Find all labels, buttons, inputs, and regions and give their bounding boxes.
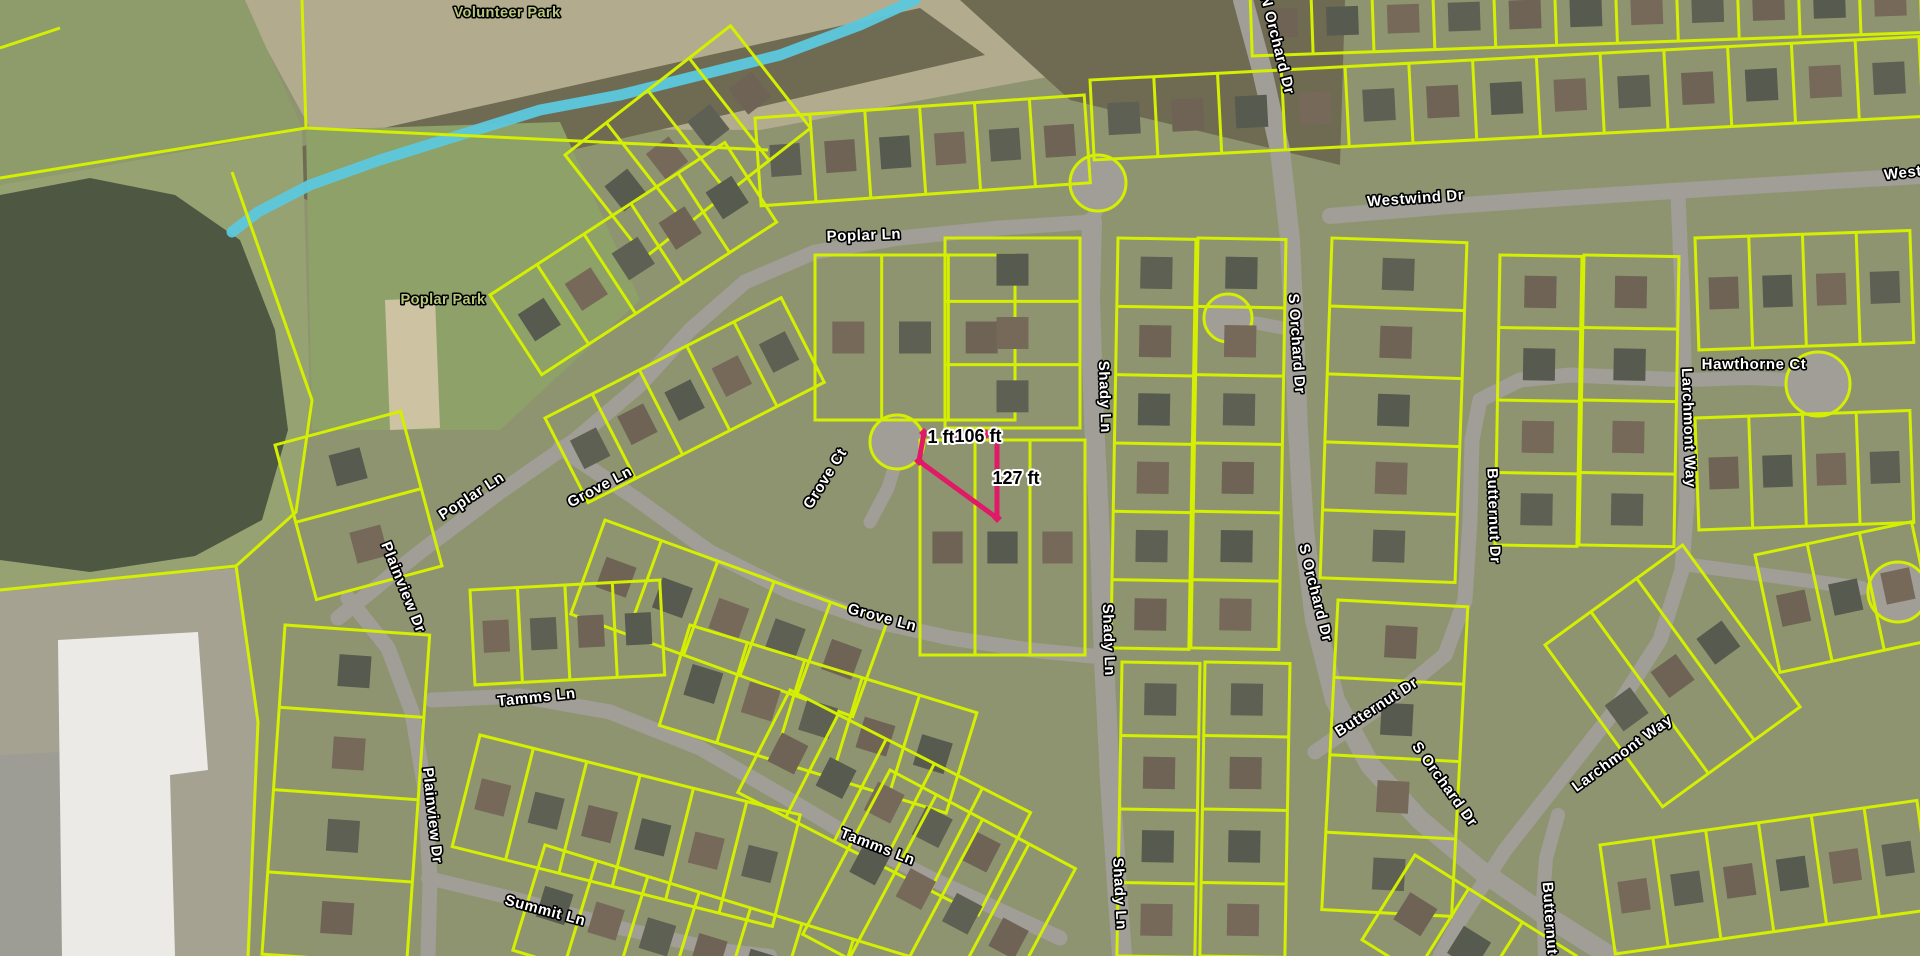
house bbox=[1143, 757, 1176, 790]
house bbox=[1553, 78, 1587, 112]
poplar-park-sand bbox=[385, 298, 440, 430]
house bbox=[1171, 98, 1205, 132]
house bbox=[482, 620, 510, 653]
house bbox=[1809, 65, 1843, 99]
house bbox=[1523, 348, 1556, 381]
street-label: Shady Ln bbox=[1099, 603, 1119, 676]
house bbox=[987, 532, 1017, 564]
house bbox=[989, 128, 1021, 162]
house bbox=[1569, 0, 1602, 27]
house bbox=[1134, 598, 1167, 631]
house bbox=[320, 901, 354, 935]
house bbox=[1520, 493, 1553, 526]
parcel-lot-line bbox=[1197, 306, 1285, 308]
house bbox=[337, 654, 371, 688]
house bbox=[1681, 71, 1715, 105]
house bbox=[1372, 530, 1405, 563]
house bbox=[1490, 81, 1524, 115]
house bbox=[934, 131, 966, 165]
parcel-lot-line bbox=[1581, 400, 1676, 402]
house bbox=[1615, 276, 1648, 309]
parcel-lot-line bbox=[1121, 735, 1199, 736]
house bbox=[1448, 2, 1481, 32]
house bbox=[997, 254, 1029, 286]
parcel-lot-line bbox=[1201, 882, 1286, 883]
house bbox=[1829, 848, 1863, 884]
house bbox=[1522, 421, 1555, 454]
house bbox=[879, 135, 911, 169]
house bbox=[1816, 453, 1847, 486]
house bbox=[1691, 0, 1724, 23]
house bbox=[932, 532, 962, 564]
house bbox=[824, 139, 856, 173]
house bbox=[1220, 530, 1253, 563]
house bbox=[966, 322, 998, 354]
house bbox=[1762, 455, 1793, 488]
street-label: Shady Ln bbox=[1095, 360, 1115, 433]
house bbox=[1870, 451, 1901, 484]
park-label: Volunteer Park bbox=[454, 5, 561, 21]
house bbox=[1140, 904, 1173, 937]
parcel-lot-line bbox=[1116, 375, 1194, 376]
house bbox=[1872, 61, 1906, 95]
house bbox=[1298, 91, 1332, 125]
house bbox=[1752, 0, 1785, 21]
house bbox=[625, 612, 653, 645]
house bbox=[1670, 870, 1704, 906]
parcel-lot-line bbox=[1580, 472, 1675, 474]
house bbox=[1222, 462, 1255, 495]
house bbox=[1617, 878, 1651, 914]
house bbox=[997, 317, 1029, 349]
house bbox=[1362, 88, 1396, 122]
house bbox=[997, 380, 1029, 412]
parcel-lot-line bbox=[1114, 443, 1192, 444]
street-label: Poplar Ln bbox=[826, 226, 901, 246]
parcel-lot-line bbox=[1192, 580, 1280, 582]
house bbox=[1611, 493, 1644, 526]
house bbox=[1762, 275, 1793, 308]
parcel-lot-line bbox=[1204, 735, 1289, 736]
house bbox=[1227, 904, 1260, 937]
house bbox=[1223, 393, 1256, 426]
parcel-lot-line bbox=[1194, 443, 1282, 445]
house bbox=[1326, 6, 1359, 36]
house bbox=[1135, 530, 1168, 563]
aerial-map-viewport[interactable]: Volunteer ParkPoplar ParkPoplar LnPoplar… bbox=[0, 0, 1920, 956]
street-label: Butternut Dr bbox=[1483, 468, 1503, 564]
parcel-lot-line bbox=[1497, 400, 1579, 401]
house bbox=[1107, 101, 1141, 135]
parcel-lot-line bbox=[1117, 306, 1195, 307]
parcel-lot-line bbox=[1499, 327, 1581, 328]
house bbox=[1613, 348, 1646, 381]
parcel-lot-line bbox=[1196, 375, 1284, 377]
house bbox=[1630, 0, 1663, 25]
house bbox=[1138, 393, 1171, 426]
house bbox=[1426, 85, 1460, 119]
house bbox=[1708, 457, 1739, 490]
house bbox=[1142, 830, 1175, 863]
house bbox=[1377, 394, 1410, 427]
house bbox=[577, 615, 605, 648]
house bbox=[1524, 276, 1557, 309]
house bbox=[1376, 780, 1410, 814]
house bbox=[1509, 0, 1542, 29]
house bbox=[1379, 326, 1412, 359]
street-label: Hawthorne Ct bbox=[1702, 356, 1807, 373]
parcel-lot-line bbox=[1118, 882, 1196, 883]
house bbox=[530, 617, 558, 650]
house bbox=[1229, 757, 1262, 790]
house bbox=[1137, 462, 1170, 495]
parcel-lot-line bbox=[1193, 511, 1281, 513]
house bbox=[1816, 273, 1847, 306]
house bbox=[326, 819, 360, 853]
map-canvas[interactable]: Volunteer ParkPoplar ParkPoplar LnPoplar… bbox=[0, 0, 1920, 956]
house bbox=[1042, 532, 1072, 564]
parcel-lot-line bbox=[1119, 809, 1197, 810]
house bbox=[1224, 325, 1257, 358]
measurement-label: 127 ft bbox=[992, 468, 1039, 488]
house bbox=[1881, 841, 1915, 877]
house bbox=[1139, 325, 1172, 358]
parcel-lot-line bbox=[1202, 809, 1287, 810]
house bbox=[1044, 124, 1076, 158]
house bbox=[1874, 0, 1907, 17]
house bbox=[332, 736, 366, 770]
measurement-label: 106 ft bbox=[954, 426, 1001, 446]
house bbox=[899, 322, 931, 354]
parcel-lot-line bbox=[1583, 327, 1678, 329]
house bbox=[1375, 462, 1408, 495]
house bbox=[1745, 68, 1779, 102]
house bbox=[1228, 830, 1261, 863]
house bbox=[1235, 95, 1269, 129]
house bbox=[1617, 75, 1651, 109]
house bbox=[1612, 421, 1645, 454]
house bbox=[1708, 277, 1739, 310]
house bbox=[1776, 856, 1810, 892]
road-hawthorne-ct bbox=[1688, 378, 1790, 380]
measurement-label: 1 ft bbox=[928, 427, 955, 447]
house bbox=[1225, 257, 1258, 290]
park-label: Poplar Park bbox=[401, 292, 487, 308]
house bbox=[1384, 625, 1418, 659]
house bbox=[1144, 683, 1177, 716]
house bbox=[1231, 683, 1264, 716]
parcel-lot-line bbox=[1112, 580, 1190, 581]
house bbox=[832, 322, 864, 354]
parcel-lot-line bbox=[1113, 511, 1191, 512]
house bbox=[1813, 0, 1846, 19]
house bbox=[1723, 863, 1757, 899]
house bbox=[1372, 857, 1406, 891]
house bbox=[1870, 271, 1901, 304]
house bbox=[1387, 4, 1420, 34]
parcel-lot-line bbox=[1496, 472, 1578, 473]
house bbox=[1219, 598, 1252, 631]
house bbox=[1382, 258, 1415, 291]
house bbox=[1140, 257, 1173, 290]
